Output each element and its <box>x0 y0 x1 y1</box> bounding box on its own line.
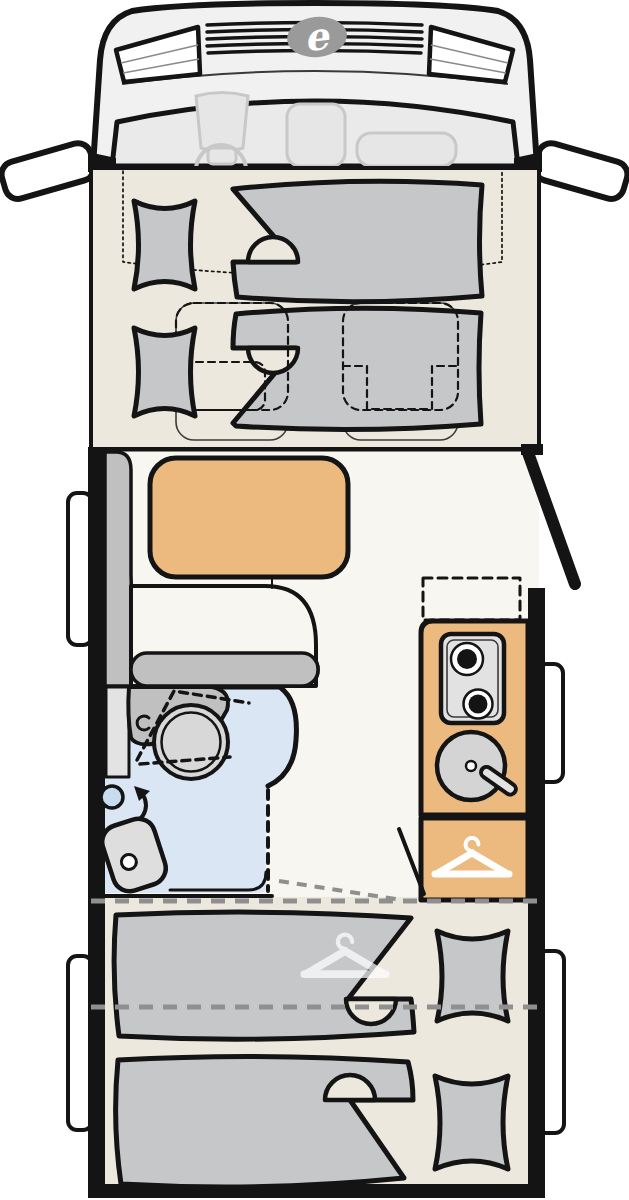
bench-front <box>131 653 318 686</box>
front-pillow-top <box>134 201 195 289</box>
right-mirror-icon <box>532 140 629 202</box>
right-wall <box>528 588 545 1193</box>
left-mirror-icon <box>0 140 97 202</box>
front-duvet-bottom <box>233 308 481 429</box>
left-wall <box>88 447 105 1193</box>
front-duvet-top <box>233 181 482 301</box>
shower-head-icon <box>101 786 123 808</box>
shower-wall <box>106 687 129 777</box>
washbasin-icon <box>154 705 228 779</box>
kitchen <box>421 578 528 900</box>
rear-pillow-top <box>437 931 508 1021</box>
wardrobe <box>421 818 528 900</box>
optional-unit-dashed <box>423 578 520 620</box>
rear-bed-top <box>114 912 414 1039</box>
dining-table <box>150 458 348 577</box>
bathroom <box>90 687 296 896</box>
floorplan-canvas: e <box>0 0 629 1200</box>
motorhome-floorplan: e <box>0 0 629 1200</box>
front-pillow-bottom <box>134 328 195 416</box>
rear-pillow-bottom <box>435 1076 508 1169</box>
